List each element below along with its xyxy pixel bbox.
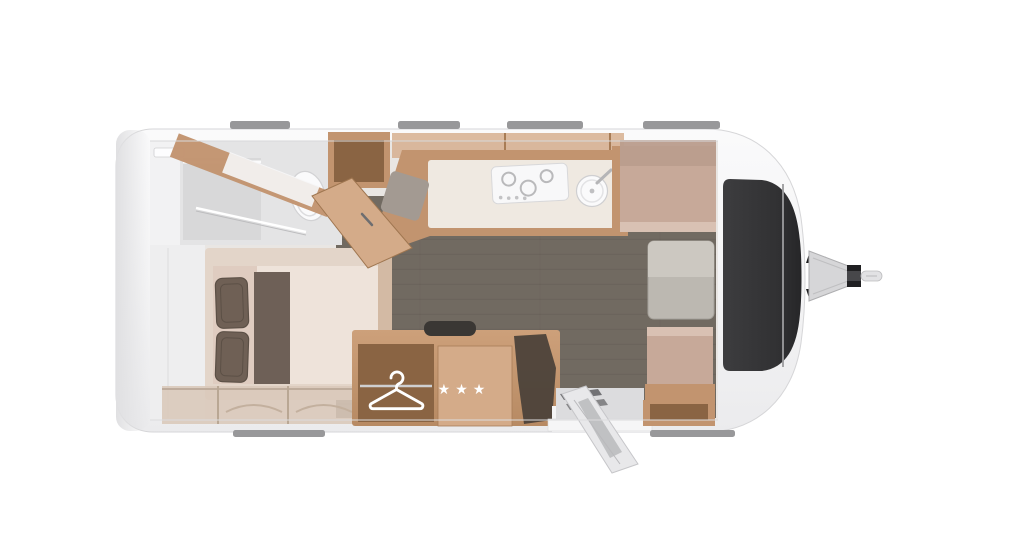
freezer-stars: ★★★ — [438, 382, 491, 398]
bench-top — [620, 140, 716, 232]
wardrobe — [358, 344, 434, 422]
bench-bottom-front-edge — [647, 327, 713, 336]
washroom — [150, 133, 342, 245]
window-mark — [233, 430, 325, 437]
roof-vent-mark — [643, 121, 720, 129]
dresser-top-appliance — [424, 321, 476, 336]
bench-divider-wood — [612, 146, 620, 232]
bench-top-backrest — [620, 140, 716, 166]
underbed-storage — [162, 386, 364, 424]
roof-marks-top — [230, 121, 720, 129]
roof-vent-mark — [398, 121, 460, 129]
front-window-band — [723, 179, 802, 371]
table-highlight — [648, 241, 714, 277]
tow-hitch — [806, 251, 882, 301]
shell-left-shade — [116, 130, 150, 431]
pillow — [215, 277, 249, 328]
dinette-table — [648, 241, 714, 319]
fridge: ★★★ — [438, 346, 512, 426]
front-storage-cabinet — [643, 400, 715, 426]
roof-vent-mark — [230, 121, 290, 129]
wardrobe-interior — [358, 344, 434, 422]
bench-bottom-frame — [645, 384, 715, 400]
pillow — [215, 331, 249, 382]
hitch-coupling-bottom — [847, 281, 861, 287]
entry-door — [548, 386, 652, 473]
roof-vent-mark — [507, 121, 583, 129]
bed-runner — [254, 272, 290, 384]
hob — [491, 163, 569, 204]
front-storage-shelf — [650, 404, 708, 420]
bench-top-front-edge — [620, 222, 716, 232]
hitch-coupling-top — [847, 265, 861, 271]
caravan-floorplan: ★★★ — [0, 0, 1024, 559]
wardrobe-fridge-block: ★★★ — [352, 321, 560, 426]
window-mark — [650, 430, 735, 437]
bench-bottom — [645, 327, 715, 400]
wall-cabinet-interior — [334, 140, 384, 182]
front-window — [723, 179, 802, 371]
sink-drain — [590, 189, 595, 194]
